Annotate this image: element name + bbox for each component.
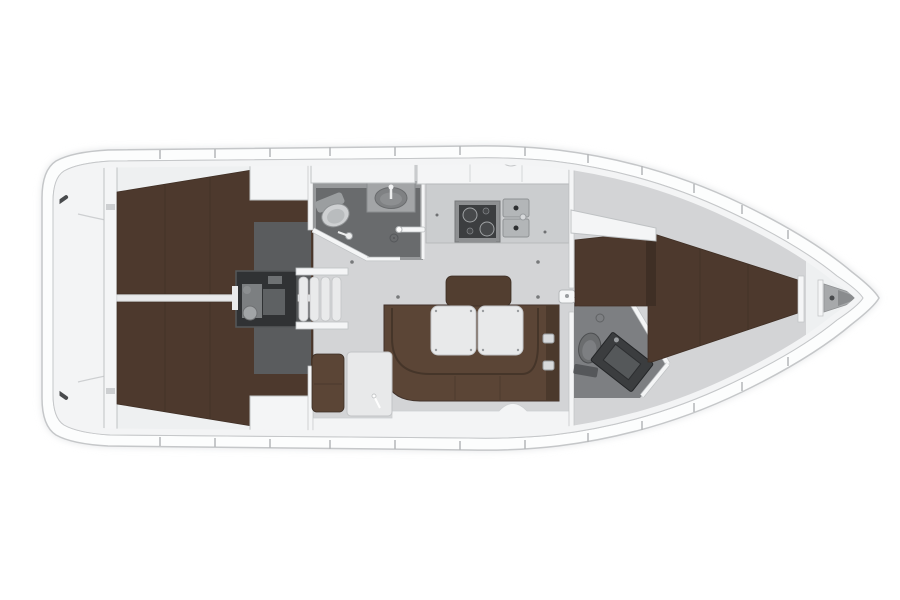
table-screw-6 [517, 310, 519, 312]
floor-dot-2 [396, 295, 400, 299]
fwd-door-hinge-dot [565, 294, 569, 298]
chart-table-stylus-tip [372, 394, 376, 398]
salon-table-left [431, 306, 476, 355]
yacht-floorplan-canvas [0, 0, 900, 600]
table-screw-2 [470, 310, 472, 312]
companionway-step-1 [299, 277, 308, 321]
stove-burner-small-1 [483, 208, 489, 214]
floor-dot-4 [536, 295, 540, 299]
stove-burner-1 [463, 208, 477, 222]
table-screw-3 [435, 349, 437, 351]
companionway-wall-top [296, 268, 348, 275]
companionway-step-3 [321, 277, 330, 321]
stove-control-strip [459, 238, 496, 242]
table-screw-1 [435, 310, 437, 312]
floor-dot-1 [350, 260, 354, 264]
companionway-step-4 [332, 277, 341, 321]
windlass-dot [830, 296, 835, 301]
sink-drain-2 [514, 226, 519, 231]
sofa-back-band [546, 305, 559, 401]
engine-gearbox [263, 289, 285, 315]
salon-backrest [446, 276, 511, 306]
table-screw-8 [517, 349, 519, 351]
sink-drain-1 [514, 206, 519, 211]
salon-table-right [478, 306, 523, 355]
companionway-wall-bottom [296, 322, 348, 329]
transom-fitting-bottom [106, 388, 115, 394]
chart-table [347, 352, 392, 416]
aft-head-faucet [389, 185, 394, 190]
galley-faucet [520, 214, 526, 220]
bow-bulkhead-2 [818, 280, 823, 316]
shower-drain-dot [393, 237, 395, 239]
stove-burner-2 [480, 222, 494, 236]
aft-centerline-bulkhead [117, 295, 239, 301]
transom-bulkhead [104, 154, 117, 444]
table-screw-7 [482, 349, 484, 351]
engine-filter [243, 286, 251, 294]
table-screw-4 [470, 349, 472, 351]
transom-fitting-top [106, 204, 115, 210]
bow-bulkhead-1 [798, 276, 804, 322]
companionway-step-2 [310, 277, 319, 321]
counter-dot-2 [544, 231, 547, 234]
engine-mount [268, 276, 282, 284]
counter-dot-1 [436, 214, 439, 217]
sofa-latch-1 [543, 334, 554, 343]
floorplan-svg [0, 0, 900, 600]
floor-dot-3 [536, 260, 540, 264]
engine-pulley [243, 306, 257, 320]
fwd-berth-divider [646, 232, 656, 306]
nav-seat [312, 354, 344, 412]
sofa-latch-2 [543, 361, 554, 370]
fwd-bulkhead-lower [569, 312, 574, 444]
stove-burner-small-2 [467, 228, 473, 234]
aft-head-door-knob [396, 227, 402, 233]
table-screw-5 [482, 310, 484, 312]
engine-front-plate [232, 286, 238, 310]
